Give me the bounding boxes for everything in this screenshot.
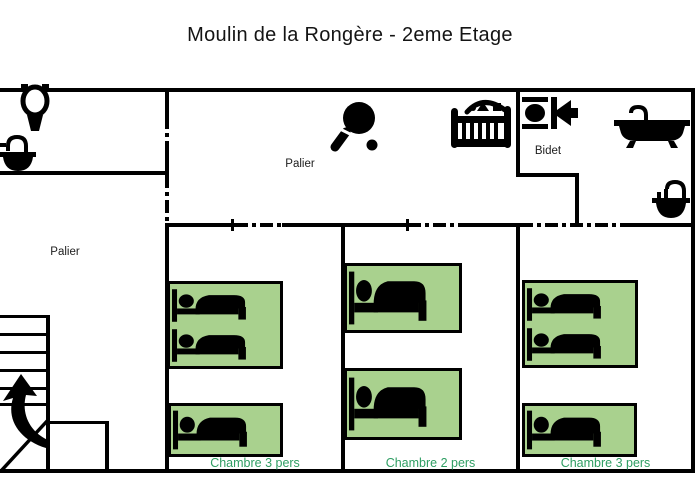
wall-bidet-bottom	[516, 173, 579, 177]
wall-bedrooms-top-1	[165, 223, 235, 227]
door-opening-room2	[408, 223, 458, 227]
door-opening-landing	[165, 175, 169, 223]
door-opening-room1	[235, 223, 282, 227]
bidet-label: Bidet	[517, 145, 579, 157]
single-bed	[168, 403, 283, 457]
stair-tread	[0, 333, 48, 336]
page-title: Moulin de la Rongère - 2eme Etage	[0, 24, 700, 47]
wall-exterior-top	[0, 88, 695, 92]
wall-bedrooms-top-4	[630, 223, 695, 227]
wall-closet-top	[46, 421, 108, 424]
double-bed	[522, 280, 638, 368]
floor-plan: Moulin de la Rongère - 2eme Etage	[0, 0, 700, 500]
room-label-2: Chambre 2 pers	[345, 456, 516, 470]
room-label-1: Chambre 3 pers	[169, 456, 341, 470]
door-jamb-room1	[231, 219, 234, 231]
wall-wc-right-lower	[165, 150, 169, 175]
door-opening-wc	[165, 116, 169, 150]
bed-sleeper-icon	[527, 408, 611, 452]
double-bed	[167, 281, 283, 369]
bidet-icon	[520, 95, 578, 133]
stair-tread	[0, 315, 48, 318]
single-bed	[522, 403, 637, 457]
upper-landing-label: Palier	[250, 158, 350, 170]
bed-sleeper-icon	[173, 408, 257, 452]
bed-sleeper-icon	[527, 286, 611, 323]
bed-sleeper-icon	[349, 374, 437, 434]
wall-bedrooms-top-3	[458, 223, 520, 227]
bed-sleeper-icon	[527, 326, 611, 363]
door-jamb-room2	[406, 219, 409, 231]
table-tennis-paddle-icon	[328, 100, 380, 152]
room-label-3: Chambre 3 pers	[520, 456, 691, 470]
single-bed	[344, 263, 462, 333]
bed-sleeper-icon	[172, 327, 256, 364]
lower-landing-label: Palier	[15, 246, 115, 258]
bed-sleeper-icon	[172, 287, 256, 324]
stairs-up-arrow-icon	[2, 372, 48, 450]
sink-icon	[0, 130, 36, 172]
baby-crib-icon	[443, 92, 519, 148]
single-bed	[344, 368, 462, 440]
stair-tread	[0, 351, 48, 354]
wall-bathroom-left	[575, 173, 579, 227]
wall-closet-right	[105, 421, 109, 472]
wall-bedrooms-top-2	[282, 223, 408, 227]
bathtub-icon	[612, 102, 692, 148]
sink-icon	[652, 176, 691, 220]
bed-sleeper-icon	[349, 268, 437, 328]
wall-wc-right-upper	[165, 88, 169, 116]
toilet-icon	[18, 84, 52, 132]
wall-room2-room3	[516, 225, 520, 473]
